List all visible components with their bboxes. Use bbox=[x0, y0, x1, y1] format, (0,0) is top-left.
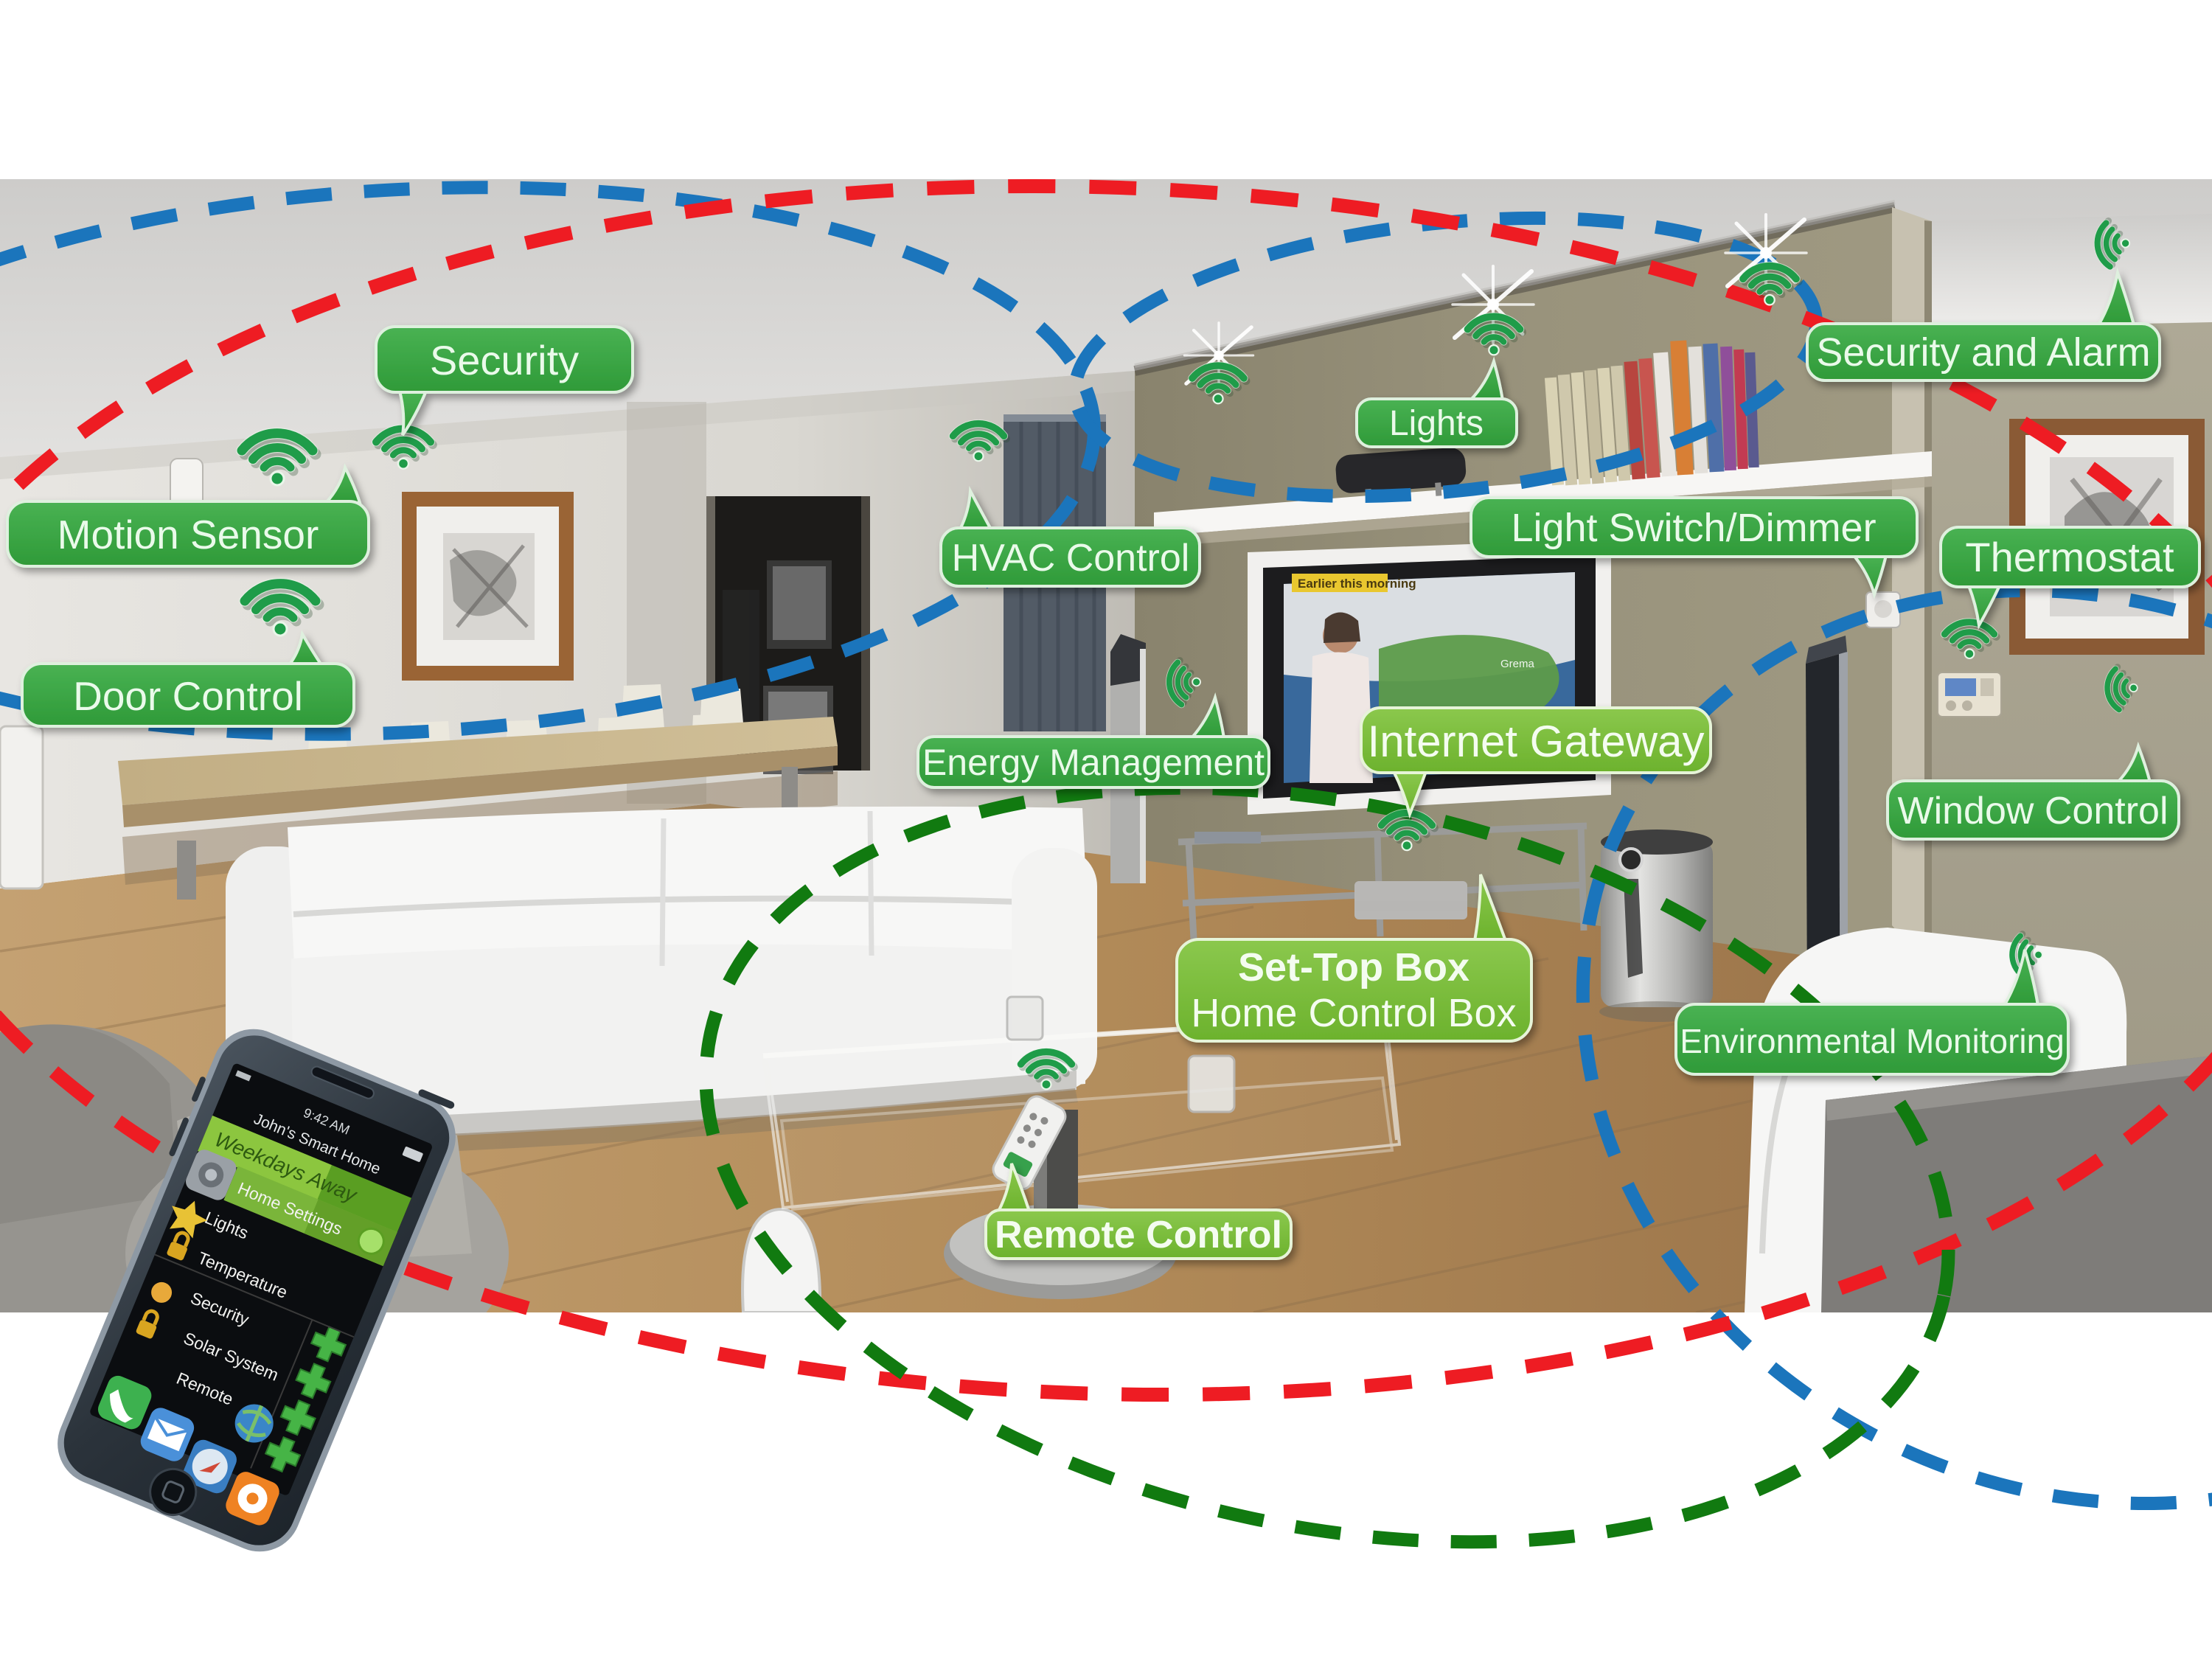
svg-text:Environmental Monitoring: Environmental Monitoring bbox=[1680, 1022, 2065, 1060]
svg-text:HVAC Control: HVAC Control bbox=[952, 537, 1190, 580]
svg-text:Window Control: Window Control bbox=[1897, 790, 2168, 832]
svg-text:Internet Gateway: Internet Gateway bbox=[1368, 717, 1705, 766]
svg-text:Home Control Box: Home Control Box bbox=[1191, 991, 1516, 1035]
svg-text:Door Control: Door Control bbox=[73, 673, 303, 719]
svg-text:Motion Sensor: Motion Sensor bbox=[58, 512, 319, 557]
svg-text:Thermostat: Thermostat bbox=[1965, 534, 2174, 580]
svg-text:Earlier this morning: Earlier this morning bbox=[1298, 577, 1416, 591]
svg-text:Grema: Grema bbox=[1500, 658, 1535, 670]
svg-text:Set-Top Box: Set-Top Box bbox=[1238, 945, 1470, 990]
svg-text:Energy Management: Energy Management bbox=[922, 742, 1265, 783]
svg-text:Light Switch/Dimmer: Light Switch/Dimmer bbox=[1511, 506, 1876, 550]
svg-text:Lights: Lights bbox=[1389, 404, 1484, 443]
svg-text:Security and Alarm: Security and Alarm bbox=[1816, 330, 2150, 375]
svg-text:Remote Control: Remote Control bbox=[995, 1214, 1282, 1256]
svg-text:Security: Security bbox=[430, 337, 579, 383]
